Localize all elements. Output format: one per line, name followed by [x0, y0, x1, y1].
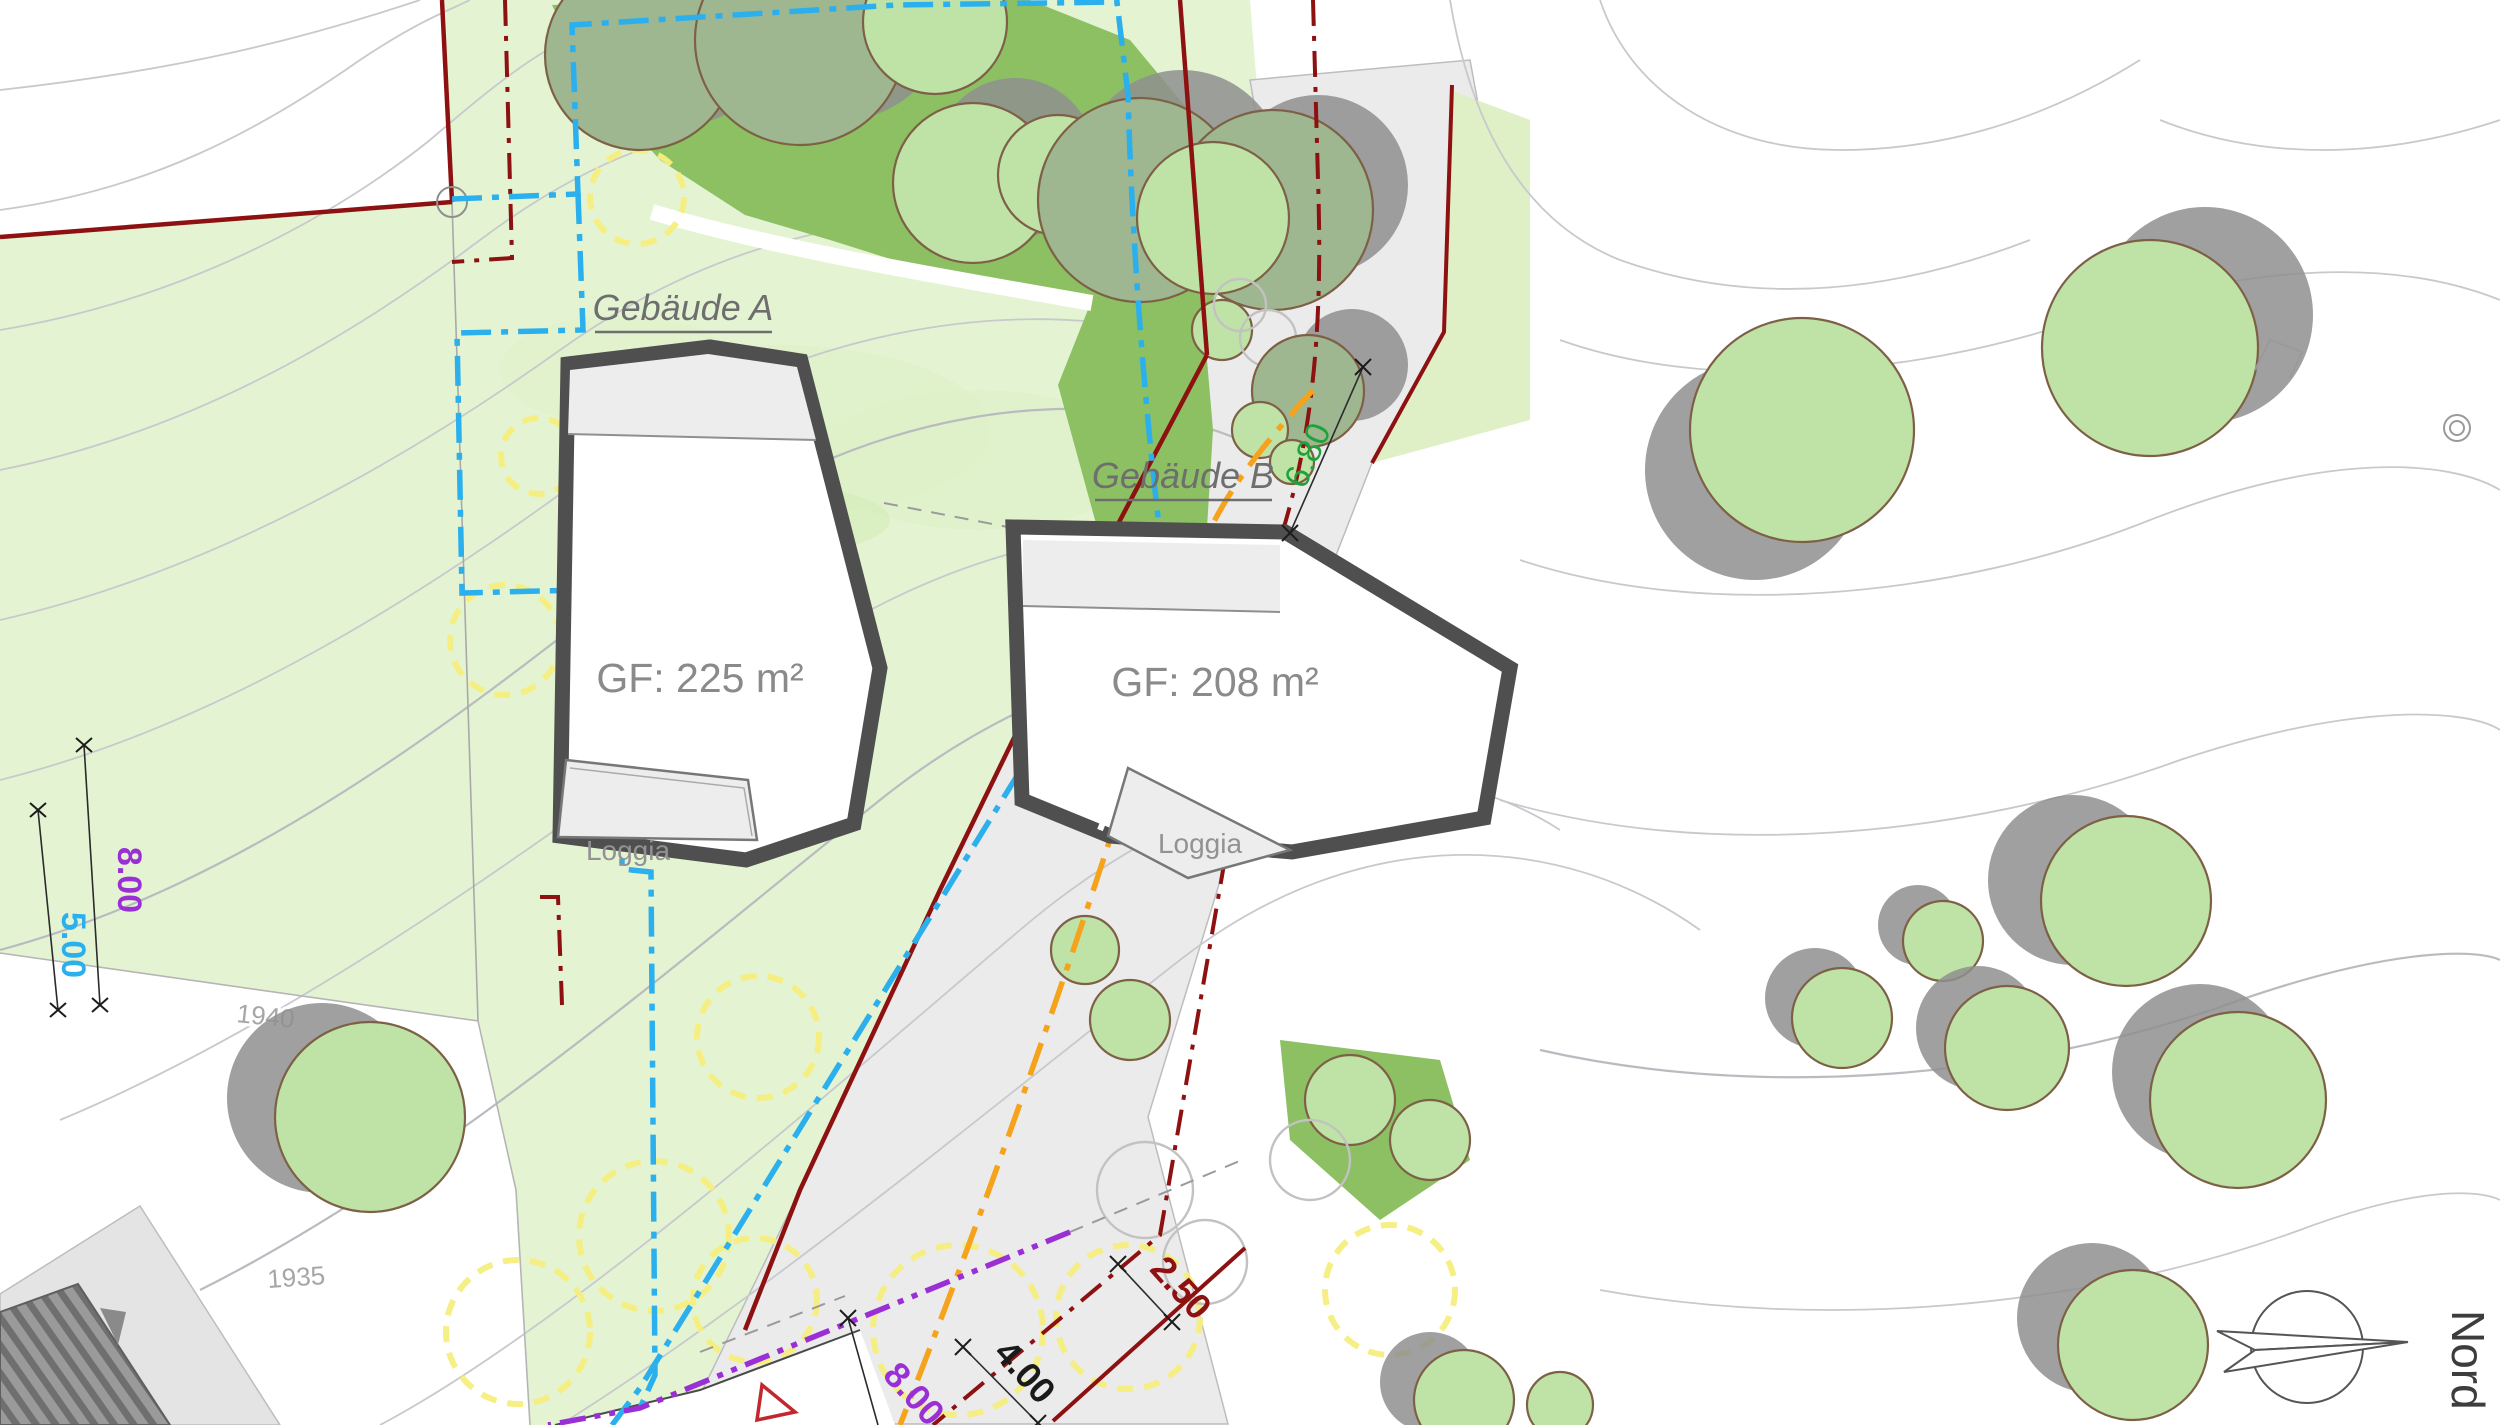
tree-icon: [1390, 1100, 1470, 1180]
building-a-loggia-label: Loggia: [586, 835, 671, 866]
tree-icon: [2150, 1012, 2326, 1188]
tree-icon: [275, 1022, 465, 1212]
dim-value: 8.00: [110, 847, 148, 913]
north-label: Nord: [2442, 1310, 2494, 1410]
neighbor-building: [0, 1206, 280, 1425]
tree-icon: [1792, 968, 1892, 1068]
building-a-area-label: GF: 225 m²: [596, 655, 803, 701]
building-b-roof-band: [1023, 540, 1280, 612]
building-b-title: Gebäude B: [1092, 455, 1274, 496]
tree-icon: [1137, 142, 1289, 294]
building-b-area-label: GF: 208 m²: [1111, 659, 1318, 705]
building-b-loggia-label: Loggia: [1158, 828, 1243, 859]
building-a-title: Gebäude A: [593, 287, 774, 328]
building-a-roof-band: [568, 354, 816, 440]
tree-icon: [2042, 240, 2258, 456]
survey-point-icon: [2444, 415, 2470, 441]
tree-icon: [1945, 986, 2069, 1110]
tree-icon: [2041, 816, 2211, 986]
tree-icon: [2058, 1270, 2208, 1420]
contour-label-1935: 1935: [266, 1260, 326, 1294]
tree-icon: [1690, 318, 1914, 542]
tree-icon: [1527, 1372, 1593, 1425]
site-plan: 1940 1935: [0, 0, 2500, 1425]
tree-icon: [1090, 980, 1170, 1060]
north-arrow: Nord: [2217, 1291, 2494, 1410]
dim-value: 5.00: [54, 912, 92, 978]
tree-icon: [1305, 1055, 1395, 1145]
tree-icon: [1051, 916, 1119, 984]
